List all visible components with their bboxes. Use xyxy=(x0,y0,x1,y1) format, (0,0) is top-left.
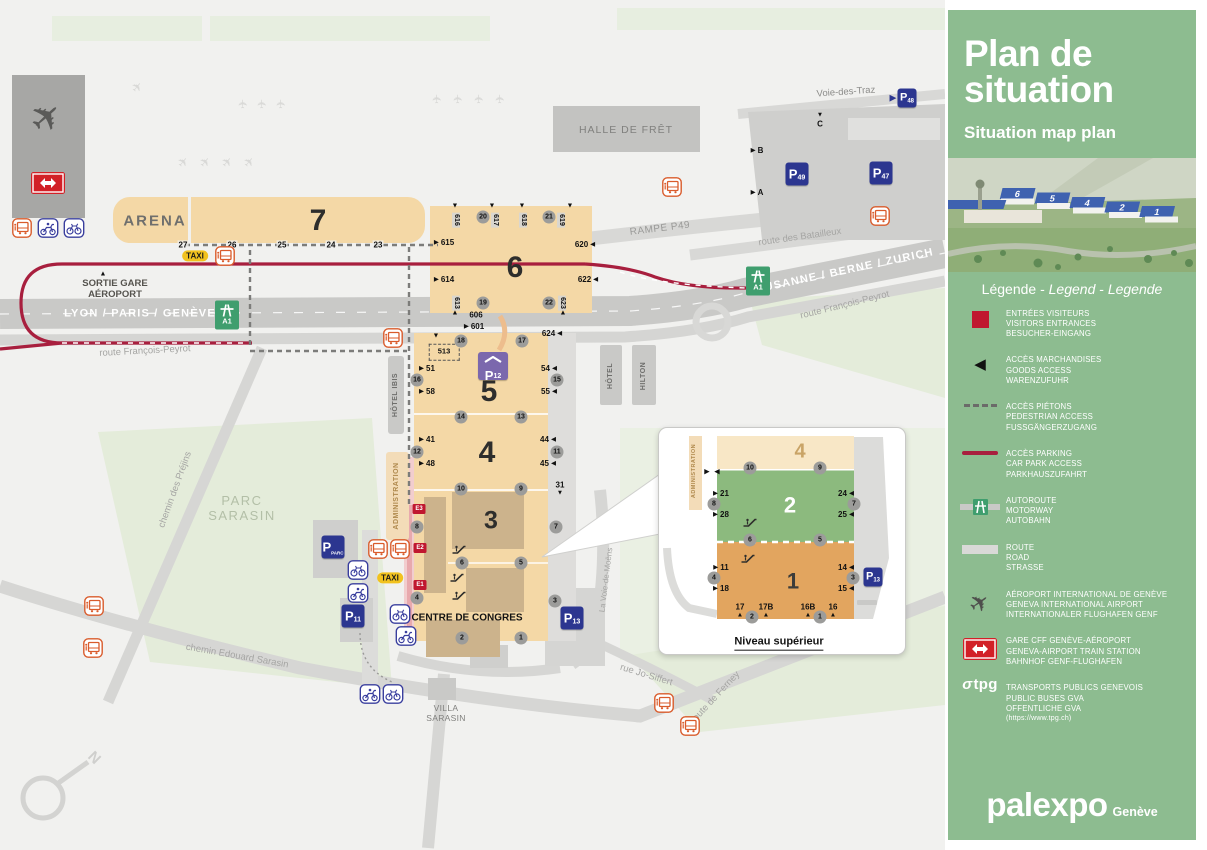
legend-item-text: ROUTEROADSTRASSE xyxy=(1006,543,1044,574)
goods-access-marker: ▶28 xyxy=(713,511,729,519)
fplane-icon: ✈ xyxy=(178,156,189,169)
gate-circle: 3 xyxy=(847,572,860,585)
moto-icon xyxy=(348,583,369,603)
pedestrian-icon xyxy=(954,402,1006,407)
map-canvas: ARENA76543HALLE DE FRÊTSORTIE GARE AÉROP… xyxy=(0,0,945,850)
goods-access-marker: 624◀ xyxy=(542,330,562,338)
moto-icon xyxy=(38,218,59,238)
goods-access-marker: 620◀ xyxy=(575,241,595,249)
goods-access-marker: ▶41 xyxy=(419,436,435,444)
goods-access-marker: ▶18 xyxy=(713,585,729,593)
legend-item-entrance: ENTRÉES VISITEURSVISITORS ENTRANCESBESUC… xyxy=(954,309,1190,340)
legend-item-parking-access: ACCÈS PARKINGCAR PARK ACCESSPARKHAUSZUFA… xyxy=(954,449,1190,480)
bus-icon xyxy=(870,206,890,226)
bus-icon xyxy=(368,539,388,559)
fplane-icon: ✈ xyxy=(200,156,211,169)
gate-circle: 12 xyxy=(411,446,424,459)
goods-access-marker: 622◀ xyxy=(578,276,598,284)
taxi-stand-label: TAXI xyxy=(182,250,208,261)
parking-badge-P11: P11 xyxy=(342,605,365,628)
legend-item-train: GARE CFF GENÈVE-AÉROPORTGENEVA-AIRPORT T… xyxy=(954,636,1190,667)
gate-circle: 8 xyxy=(411,521,424,534)
esc-icon xyxy=(741,553,756,564)
legend-title-fr: Légende xyxy=(982,281,1037,297)
map-markers-layer: ARENA76543HALLE DE FRÊTSORTIE GARE AÉROP… xyxy=(0,0,945,850)
triangle-marker: ▲ xyxy=(452,310,459,317)
fplane-icon: ✈ xyxy=(132,81,143,94)
goods-access-marker: ▶614 xyxy=(434,276,454,284)
gate-circle: 18 xyxy=(455,335,468,348)
street-label: La Voie-de-Moëns xyxy=(597,547,614,613)
gate-marker: 17▲ xyxy=(736,603,745,619)
parking-badge-P13: P13 xyxy=(864,568,883,587)
gate-circle: 10 xyxy=(455,483,468,496)
esc-icon xyxy=(450,572,465,583)
gate-circle: 5 xyxy=(814,534,827,547)
goods-icon: ◀ xyxy=(954,355,1006,372)
inset-administration-label: ADMINISTRATION xyxy=(691,444,697,498)
gate-circle: 15 xyxy=(551,374,564,387)
road-icon xyxy=(954,543,1006,554)
triangle-marker: ▲ xyxy=(560,310,567,317)
street-label: route des Batailleux xyxy=(758,227,842,249)
bike-icon xyxy=(383,684,404,704)
gate-circle: 9 xyxy=(814,462,827,475)
gate-circle: 19 xyxy=(477,297,490,310)
dock-door-number: 617 xyxy=(491,213,499,228)
legend-item-text: AÉROPORT INTERNATIONAL DE GENÈVEGENEVA I… xyxy=(1006,590,1167,621)
street-label: chemin Edouard Sarasin xyxy=(185,643,289,672)
legend-item-text: ACCÈS PIÉTONSPEDESTRIAN ACCESSFUSSGÄNGER… xyxy=(1006,402,1097,433)
goods-access-marker: 44◀ xyxy=(540,436,556,444)
gate-circle: 10 xyxy=(744,462,757,475)
dock-door-number: 623 xyxy=(558,296,566,311)
inset-hall-4-number: 4 xyxy=(794,441,805,464)
street-label: Voie-des-Traz xyxy=(816,86,875,101)
bus-icon xyxy=(12,218,32,238)
sbb-icon xyxy=(31,172,65,194)
goods-access-marker: ▶B xyxy=(751,147,764,155)
title-line-1: Plan de xyxy=(964,33,1092,74)
motorway-direction-west: LYON / PARIS / GENÈVE xyxy=(64,308,216,321)
bus-icon xyxy=(654,693,674,713)
gate-circle: 13 xyxy=(515,411,528,424)
dock-door-number: 616 xyxy=(452,213,460,228)
palexpo-aerial-photo: 65421 xyxy=(948,158,1196,272)
gate-marker: 17B▲ xyxy=(759,603,774,619)
fcross-icon: ✈ xyxy=(432,93,442,105)
esc-icon xyxy=(452,590,467,601)
hotel-hilton-label: HÔTEL xyxy=(607,363,615,389)
gate-marker: 16▲ xyxy=(829,603,838,619)
gate-circle: 2 xyxy=(456,632,469,645)
legend-item-pedestrian: ACCÈS PIÉTONSPEDESTRIAN ACCESSFUSSGÄNGER… xyxy=(954,402,1190,433)
bus-icon xyxy=(680,716,700,736)
bus-icon xyxy=(84,596,104,616)
parking-badge-P49: P49 xyxy=(786,163,809,186)
legend-item-text: AUTOROUTEMOTORWAYAUTOBAHN xyxy=(1006,496,1057,527)
gate-circle: 8 xyxy=(708,498,721,511)
gate-513-box: 513 xyxy=(429,344,460,361)
gate-circle: 2 xyxy=(746,611,759,624)
visitor-entrance-badge: E2 xyxy=(414,543,427,553)
fcross-icon: ✈ xyxy=(474,93,484,105)
triangle-marker: ◀ xyxy=(714,469,719,476)
goods-access-marker: ▶51 xyxy=(419,365,435,373)
gate-circle: 11 xyxy=(551,446,564,459)
gate-circle: 3 xyxy=(549,595,562,608)
goods-access-marker: ▶601 xyxy=(464,323,484,331)
goods-access-marker: ▶58 xyxy=(419,388,435,396)
bus-icon xyxy=(390,539,410,559)
bus-icon xyxy=(383,328,403,348)
dock-door-number: 619 xyxy=(557,213,565,228)
motorway-icon xyxy=(954,496,1006,516)
triangle-marker: ▼ xyxy=(433,333,440,340)
street-label: route François-Peyrot xyxy=(99,344,191,360)
fcross-icon: ✈ xyxy=(453,93,463,105)
taxi-stand-label: TAXI xyxy=(377,572,403,583)
gate-circle: 1 xyxy=(515,632,528,645)
title-line-2: situation xyxy=(964,69,1114,110)
page-subtitle: Situation map plan xyxy=(964,123,1180,143)
moto-icon xyxy=(396,626,417,646)
legend-title: Légende - Legend - Legende xyxy=(948,281,1196,297)
villa-sarasin-label: VILLA SARASIN xyxy=(426,704,465,724)
esc-icon xyxy=(743,517,758,528)
dock-door-number: 613 xyxy=(452,296,460,311)
inset-hall-2-number: 2 xyxy=(784,492,796,517)
visitor-entrance-badge: E1 xyxy=(414,580,427,590)
palexpo-situation-map: ARENA76543HALLE DE FRÊTSORTIE GARE AÉROP… xyxy=(0,0,1207,850)
triangle-marker: ▶ xyxy=(704,469,709,476)
palexpo-logo: palexpoGenève xyxy=(948,786,1196,824)
goods-access-marker: ▶A xyxy=(751,189,764,197)
bus-icon xyxy=(83,638,103,658)
parking-badge-P13: P13 xyxy=(561,607,584,630)
legend-item-goods: ◀ACCÈS MARCHANDISESGOODS ACCESSWARENZUFU… xyxy=(954,355,1190,386)
entrance-icon xyxy=(954,309,1006,328)
gate-circle: 16 xyxy=(411,374,424,387)
legend-item-tpg: σtpgTRANSPORTS PUBLICS GENEVOISPUBLIC BU… xyxy=(954,683,1190,723)
goods-access-marker: 25◀ xyxy=(838,511,854,519)
triangle-marker: ▼ xyxy=(489,203,496,210)
ramp-p49-label: RAMPE P49 xyxy=(629,220,691,239)
gate-circle: 20 xyxy=(477,211,490,224)
brand-city: Genève xyxy=(1113,805,1158,819)
gate-number: 23 xyxy=(373,240,384,249)
tpg-icon: σtpg xyxy=(954,683,1006,685)
gate-circle: 7 xyxy=(550,521,563,534)
bike-icon xyxy=(348,560,369,580)
legend-item-road: ROUTEROADSTRASSE xyxy=(954,543,1190,574)
legend-list: ENTRÉES VISITEURSVISITORS ENTRANCESBESUC… xyxy=(948,309,1196,724)
gate-circle: 14 xyxy=(455,411,468,424)
legend-item-text: ENTRÉES VISITEURSVISITORS ENTRANCESBESUC… xyxy=(1006,309,1096,340)
page-title: Plan de situation xyxy=(964,36,1180,109)
fcross-icon: ✈ xyxy=(276,98,286,110)
street-label: route François-Peyrot xyxy=(799,290,890,323)
street-label: rue Jo-Siffert xyxy=(618,663,673,689)
legend-item-motorway: AUTOROUTEMOTORWAYAUTOBAHN xyxy=(954,496,1190,527)
gate-circle: 7 xyxy=(848,498,861,511)
bike-icon xyxy=(64,218,85,238)
gate-circle: 4 xyxy=(708,572,721,585)
legend-item-text: ACCÈS MARCHANDISESGOODS ACCESSWARENZUFUH… xyxy=(1006,355,1101,386)
motorway-a1-badge: A1 xyxy=(215,301,239,330)
gate-marker: 31▼ xyxy=(556,481,565,497)
legend-item-text: TRANSPORTS PUBLICS GENEVOISPUBLIC BUSES … xyxy=(1006,683,1143,723)
parking-badge-P47: P47 xyxy=(870,162,893,185)
moto-icon xyxy=(360,684,381,704)
plane-icon: ✈ xyxy=(31,99,63,137)
parc-sarasin-label: PARC SARASIN xyxy=(208,494,276,524)
gate-circle: 6 xyxy=(744,534,757,547)
legend-title-de: Legende xyxy=(1108,281,1163,297)
goods-access-marker: 15◀ xyxy=(838,585,854,593)
triangle-marker: ▲ xyxy=(100,271,107,278)
fplane-icon: ✈ xyxy=(222,156,233,169)
arena-label: ARENA xyxy=(123,212,186,229)
fcross-icon: ✈ xyxy=(238,98,248,110)
gate-marker: ▼C xyxy=(817,112,823,128)
legend-item-text: ACCÈS PARKINGCAR PARK ACCESSPARKHAUSZUFA… xyxy=(1006,449,1087,480)
goods-access-marker: 54◀ xyxy=(541,365,557,373)
parking-badge-PPARC: PPARC xyxy=(322,536,345,559)
parking-badge-P12: P12 xyxy=(478,352,508,380)
parking-access-icon xyxy=(954,449,1006,455)
hall-6-number: 6 xyxy=(507,251,524,286)
gate-circle: 21 xyxy=(543,211,556,224)
legend-item-airport: ✈AÉROPORT INTERNATIONAL DE GENÈVEGENEVA … xyxy=(954,590,1190,621)
gate-circle: 22 xyxy=(543,297,556,310)
congress-centre-label: CENTRE DE CONGRES xyxy=(411,612,522,624)
gate-circle: 9 xyxy=(515,483,528,496)
triangle-marker: ▼ xyxy=(519,203,526,210)
triangle-marker: ▶ xyxy=(890,94,897,103)
hotel-hilton-label: HILTON xyxy=(640,362,648,390)
hall-4-number: 4 xyxy=(479,436,496,471)
airport-icon: ✈ xyxy=(954,590,1006,616)
bus-icon xyxy=(215,246,235,266)
gate-circle: 5 xyxy=(515,557,528,570)
legend-item-text: GARE CFF GENÈVE-AÉROPORTGENEVA-AIRPORT T… xyxy=(1006,636,1141,667)
motorway-a1-badge: A1 xyxy=(746,267,770,296)
gate-circle: 4 xyxy=(411,592,424,605)
dock-door-number: 618 xyxy=(519,213,527,228)
goods-access-marker: 45◀ xyxy=(540,460,556,468)
visitor-entrance-badge: E3 xyxy=(413,504,426,514)
gate-number: 27 xyxy=(178,240,189,249)
street-label: chemin des Préjins xyxy=(157,450,195,529)
parking-badge-P48: P48 xyxy=(898,89,917,108)
motorway-direction-east: LAUSANNE / BERNE / ZURICH xyxy=(747,246,935,298)
hall-7-number: 7 xyxy=(310,204,327,239)
inset-hall-1-number: 1 xyxy=(787,568,799,593)
esc-icon xyxy=(452,544,467,555)
map-label: 606 xyxy=(469,310,482,319)
triangle-marker: ▼ xyxy=(452,203,459,210)
gate-circle: 6 xyxy=(456,557,469,570)
inset-caption: Niveau supérieur xyxy=(734,636,823,651)
brand-wordmark: palexpo xyxy=(986,786,1107,823)
gate-number: 25 xyxy=(277,240,288,249)
gate-number: 24 xyxy=(326,240,337,249)
hall-3-number: 3 xyxy=(484,507,498,536)
bike-icon xyxy=(390,604,411,624)
bus-icon xyxy=(662,177,682,197)
fplane-icon: ✈ xyxy=(244,156,255,169)
goods-access-marker: ▶615 xyxy=(434,239,454,247)
administration-label: ADMINISTRATION xyxy=(393,462,401,529)
fcross-icon: ✈ xyxy=(257,98,267,110)
station-exit-label: SORTIE GARE AÉROPORT xyxy=(82,279,147,301)
goods-access-marker: 55◀ xyxy=(541,388,557,396)
gate-circle: 17 xyxy=(516,335,529,348)
legend-sidebar: Plan de situation Situation map plan 654… xyxy=(948,10,1196,840)
freight-hall-label: HALLE DE FRÊT xyxy=(579,124,673,136)
train-icon xyxy=(954,636,1006,660)
legend-title-en: Legend xyxy=(1049,281,1096,297)
goods-access-marker: ▶48 xyxy=(419,460,435,468)
hotel-ibis-label: HÔTEL IBIS xyxy=(392,373,400,417)
gate-circle: 1 xyxy=(814,611,827,624)
triangle-marker: ▼ xyxy=(567,203,574,210)
north-indicator: N xyxy=(84,748,104,768)
fcross-icon: ✈ xyxy=(495,93,505,105)
